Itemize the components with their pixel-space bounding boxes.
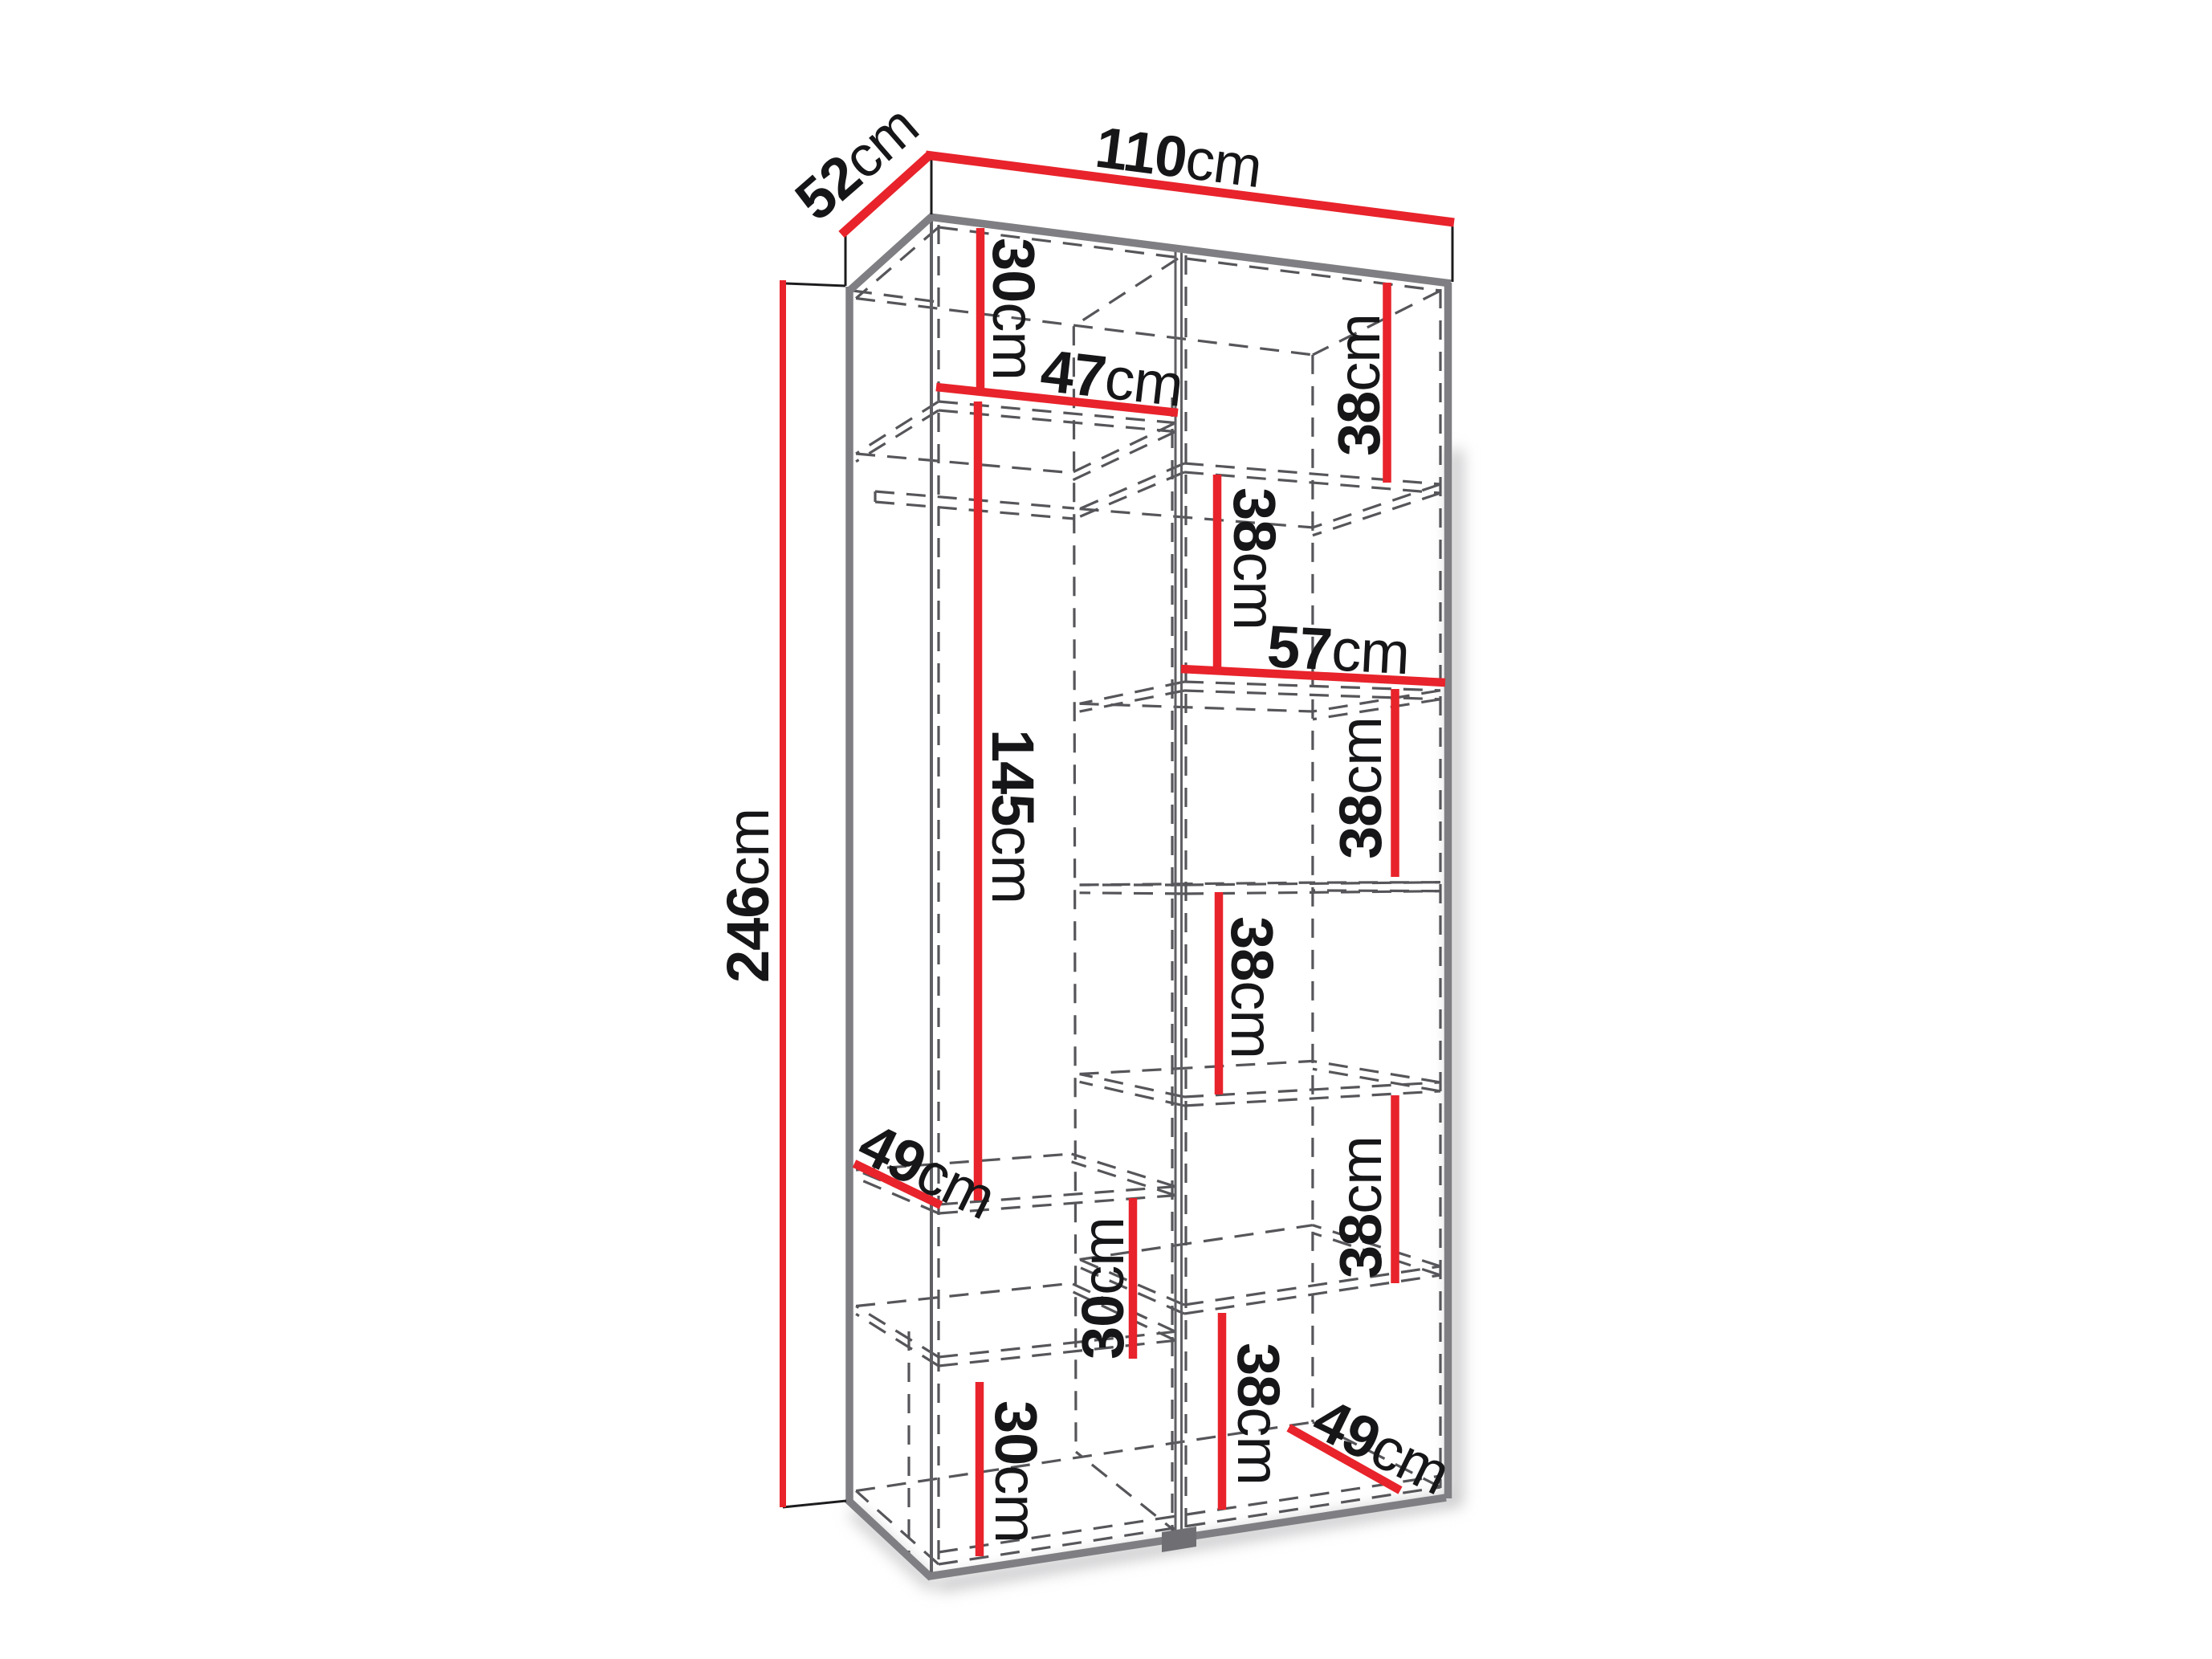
svg-text:30cm: 30cm xyxy=(983,1400,1049,1543)
svg-text:38cm: 38cm xyxy=(1327,1136,1394,1278)
svg-text:145cm: 145cm xyxy=(980,729,1046,903)
svg-text:57cm: 57cm xyxy=(1265,613,1411,687)
svg-text:38cm: 38cm xyxy=(1225,1343,1292,1485)
svg-text:38cm: 38cm xyxy=(1326,314,1392,456)
svg-text:38cm: 38cm xyxy=(1219,916,1285,1058)
svg-text:38cm: 38cm xyxy=(1327,717,1394,859)
svg-text:30cm: 30cm xyxy=(980,238,1047,380)
svg-text:30cm: 30cm xyxy=(1069,1217,1136,1359)
svg-text:38cm: 38cm xyxy=(1221,487,1288,630)
svg-text:246cm: 246cm xyxy=(715,809,781,983)
